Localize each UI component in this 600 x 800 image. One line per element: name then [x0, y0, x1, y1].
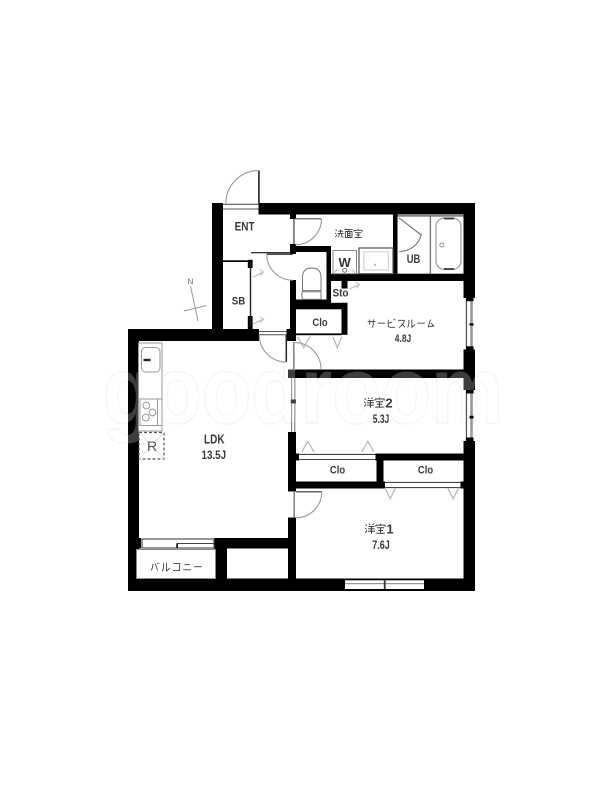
- svg-text:R: R: [147, 438, 157, 454]
- svg-text:LDK: LDK: [204, 433, 225, 447]
- svg-text:Clo: Clo: [330, 464, 345, 476]
- svg-text:4.8J: 4.8J: [395, 333, 412, 345]
- svg-text:W: W: [339, 255, 352, 270]
- svg-text:Sto: Sto: [333, 288, 349, 300]
- svg-text:N: N: [187, 277, 193, 287]
- svg-text:Clo: Clo: [312, 317, 327, 329]
- svg-text:UB: UB: [407, 254, 421, 266]
- svg-text:1: 1: [386, 521, 393, 536]
- svg-text:13.5J: 13.5J: [202, 448, 227, 462]
- svg-text:2: 2: [385, 395, 392, 410]
- svg-text:goodroom: goodroom: [103, 337, 503, 444]
- svg-text:5.3J: 5.3J: [373, 412, 390, 426]
- svg-text:ENT: ENT: [235, 221, 255, 233]
- svg-text:7.6J: 7.6J: [372, 538, 390, 552]
- svg-text:Clo: Clo: [418, 464, 433, 476]
- svg-text:SB: SB: [232, 296, 246, 308]
